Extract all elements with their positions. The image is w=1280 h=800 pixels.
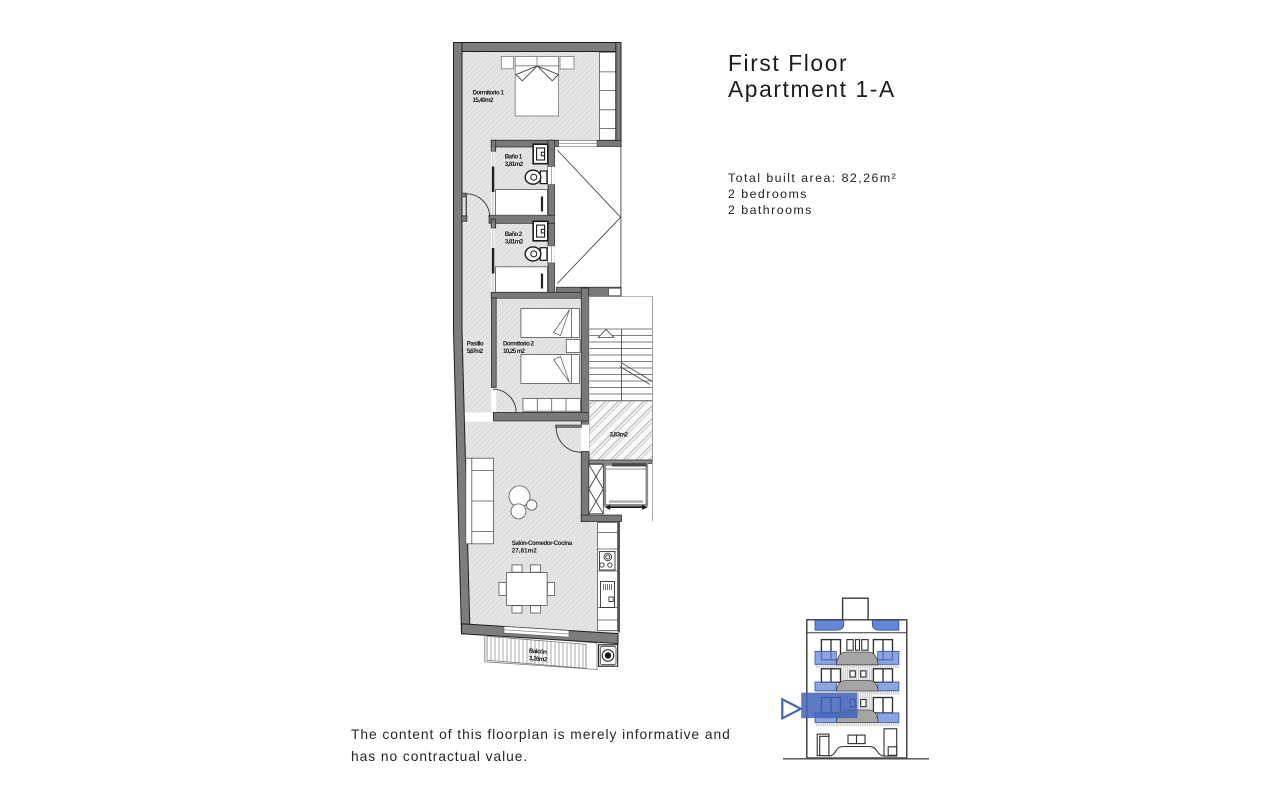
svg-text:Dormitorio 2: Dormitorio 2 xyxy=(503,341,535,348)
svg-text:3,83m2: 3,83m2 xyxy=(610,432,629,439)
svg-text:Pasillo: Pasillo xyxy=(467,341,484,348)
svg-text:27,81m2: 27,81m2 xyxy=(512,548,538,555)
svg-text:Dormitorio 1: Dormitorio 1 xyxy=(473,90,505,97)
svg-text:5,67m2: 5,67m2 xyxy=(467,348,484,355)
svg-text:Baño 1: Baño 1 xyxy=(505,154,523,161)
svg-text:10,25 m2: 10,25 m2 xyxy=(503,348,526,355)
svg-text:3,81m2: 3,81m2 xyxy=(505,239,524,246)
svg-text:15,40m2: 15,40m2 xyxy=(473,97,495,104)
svg-text:Baño 2: Baño 2 xyxy=(505,231,523,238)
svg-text:3,81m2: 3,81m2 xyxy=(505,161,524,168)
svg-text:Salón-Comedor-Cocina: Salón-Comedor-Cocina xyxy=(512,540,573,547)
